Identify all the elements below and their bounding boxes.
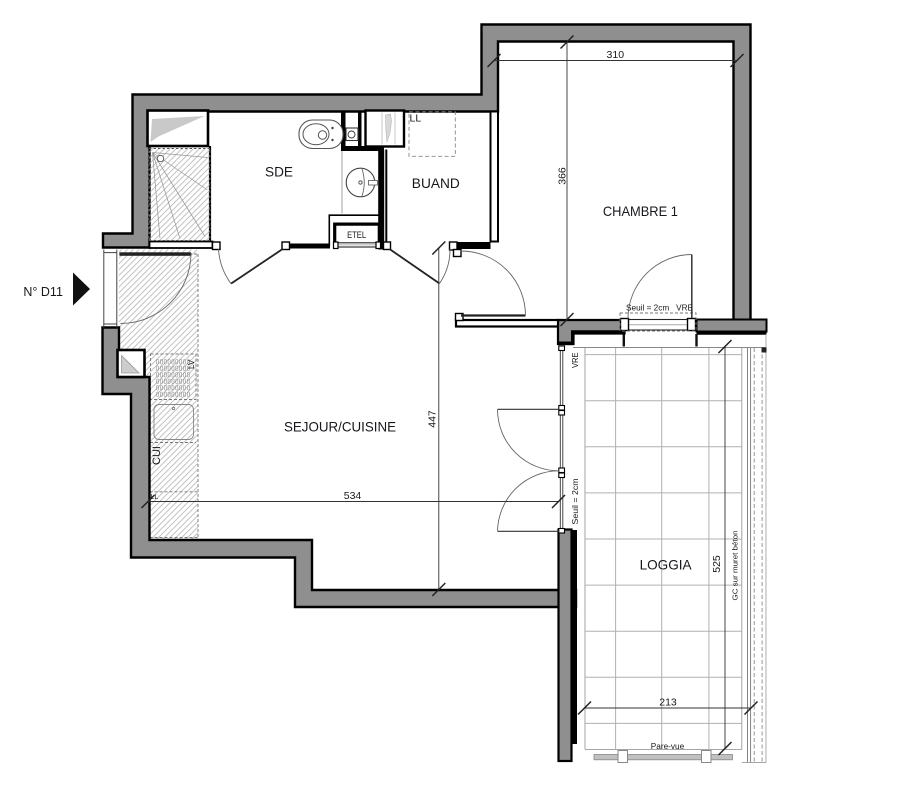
svg-text:310: 310 — [607, 49, 625, 61]
svg-text:447: 447 — [427, 410, 439, 428]
svg-text:366: 366 — [557, 167, 569, 185]
svg-text:525: 525 — [711, 555, 723, 573]
svg-text:213: 213 — [659, 697, 677, 709]
svg-text:CUI: CUI — [151, 446, 163, 465]
svg-text:CHAMBRE 1: CHAMBRE 1 — [603, 203, 678, 219]
svg-text:LOGGIA: LOGGIA — [640, 557, 693, 573]
svg-text:LL: LL — [151, 494, 159, 501]
svg-text:LV: LV — [187, 359, 196, 369]
svg-text:LL: LL — [410, 113, 422, 125]
svg-text:ETEL: ETEL — [347, 230, 366, 241]
svg-text:Seuil = 2cm: Seuil = 2cm — [571, 478, 580, 524]
svg-text:Pare-vue: Pare-vue — [651, 742, 685, 751]
svg-text:SDE: SDE — [265, 164, 293, 180]
svg-text:Seuil = 2cm VRE: Seuil = 2cm VRE — [626, 304, 693, 313]
svg-text:534: 534 — [344, 490, 362, 502]
svg-text:N° D11: N° D11 — [23, 285, 63, 299]
svg-text:GC sur muret béton: GC sur muret béton — [731, 531, 740, 601]
svg-text:BUAND: BUAND — [412, 175, 460, 191]
svg-text:VRE: VRE — [571, 353, 580, 369]
svg-text:SEJOUR/CUISINE: SEJOUR/CUISINE — [284, 419, 396, 435]
